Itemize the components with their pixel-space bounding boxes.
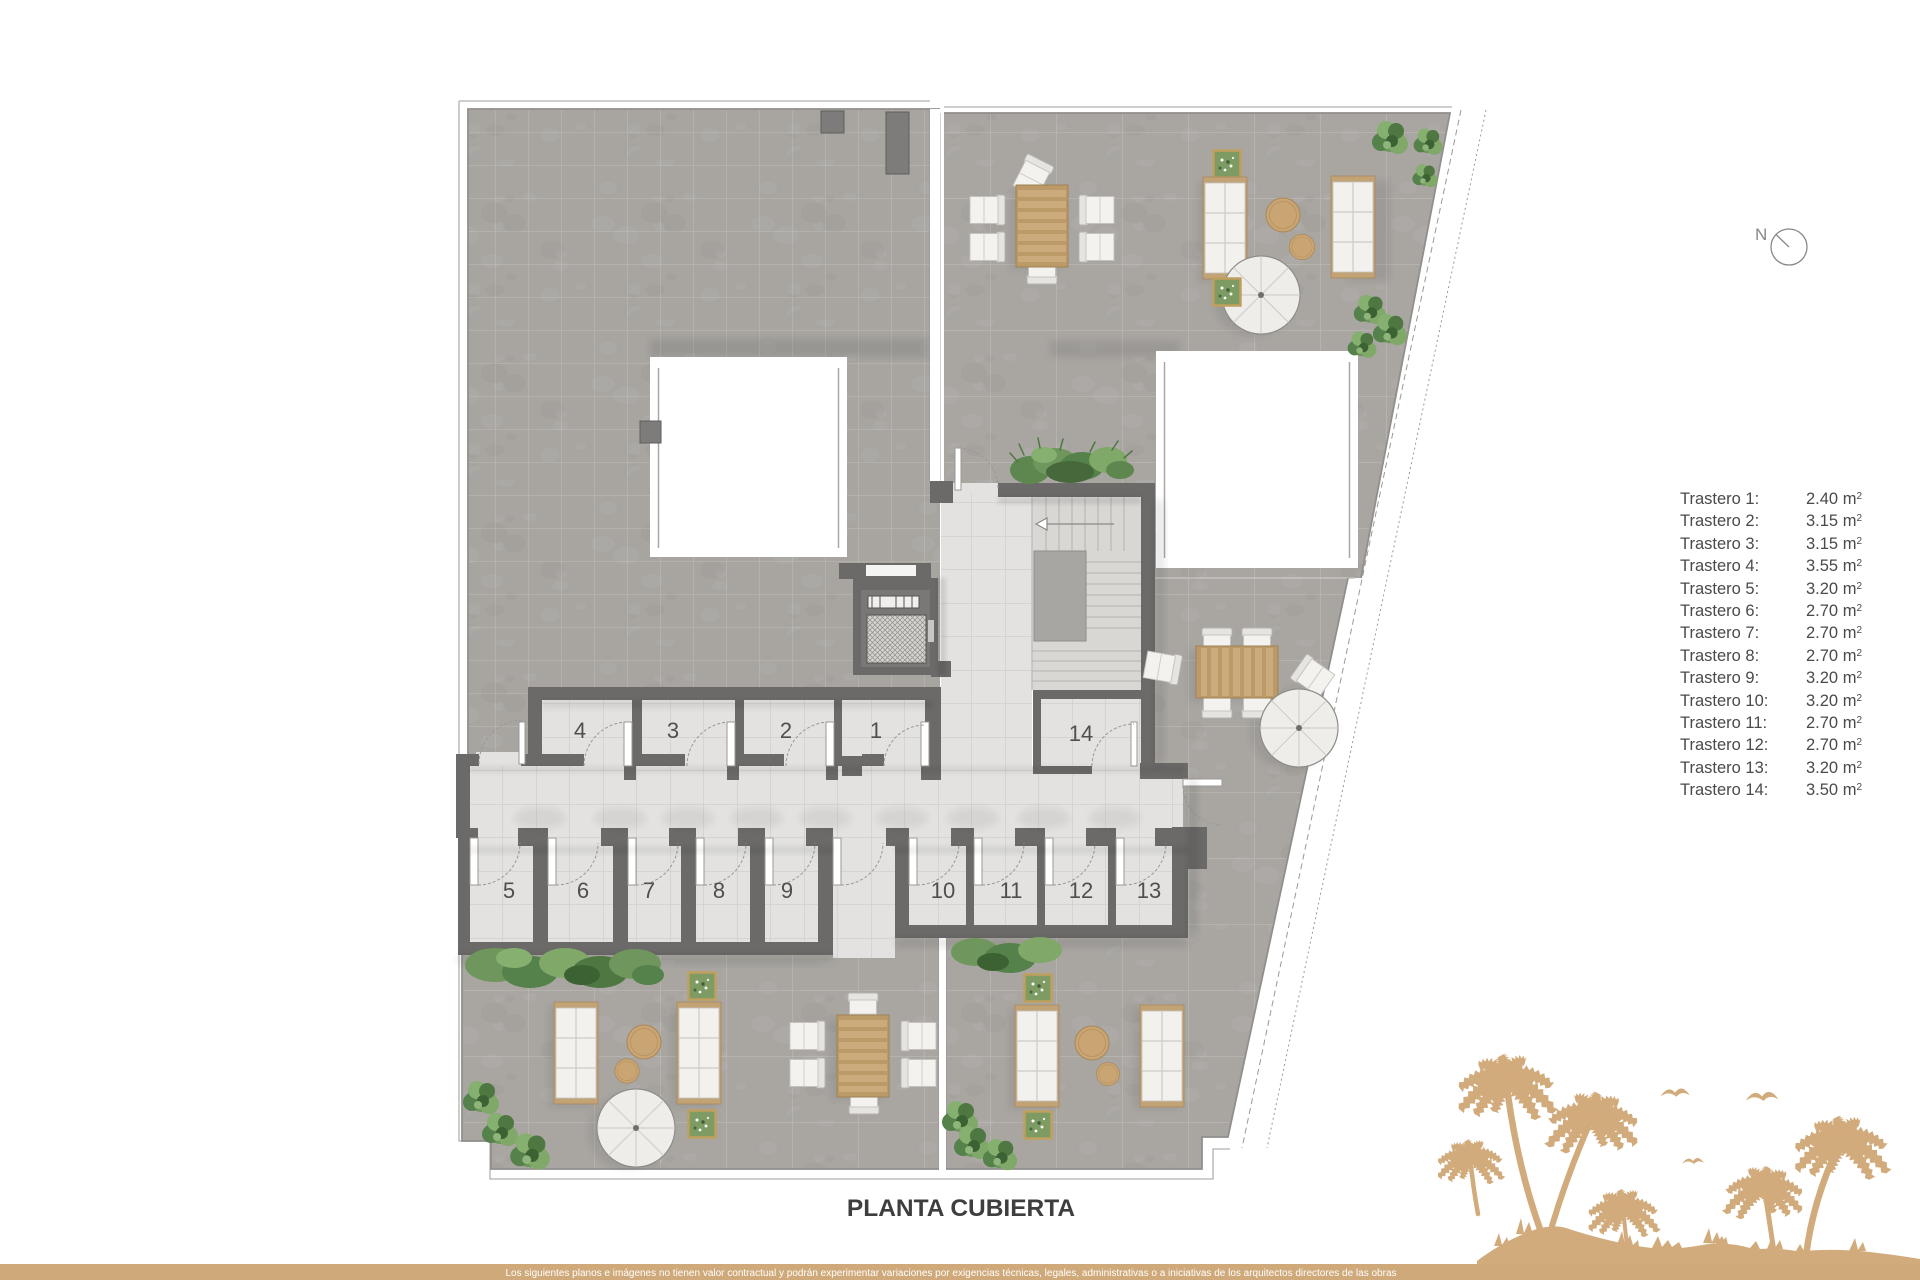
svg-text:2.40 m2: 2.40 m2 (1806, 490, 1862, 508)
svg-text:11: 11 (1000, 878, 1023, 903)
svg-text:12: 12 (1069, 878, 1093, 903)
svg-text:Trastero 3:: Trastero 3: (1680, 535, 1759, 553)
svg-text:5: 5 (503, 878, 515, 903)
svg-text:1: 1 (870, 718, 882, 743)
svg-text:8: 8 (713, 878, 725, 903)
svg-text:Trastero 8:: Trastero 8: (1680, 647, 1759, 665)
svg-text:Trastero 12:: Trastero 12: (1680, 736, 1768, 754)
svg-text:2.70 m2: 2.70 m2 (1806, 736, 1862, 754)
svg-text:Trastero 5:: Trastero 5: (1680, 580, 1759, 598)
svg-text:Trastero 1:: Trastero 1: (1680, 490, 1759, 508)
svg-text:Trastero 10:: Trastero 10: (1680, 692, 1768, 710)
svg-text:9: 9 (781, 878, 793, 903)
svg-text:3: 3 (667, 718, 679, 743)
svg-text:Los siguientes planos e imágen: Los siguientes planos e imágenes no tien… (505, 1268, 1396, 1279)
svg-text:3.55 m2: 3.55 m2 (1806, 557, 1862, 575)
svg-text:Trastero 6:: Trastero 6: (1680, 602, 1759, 620)
svg-text:Trastero 11:: Trastero 11: (1680, 714, 1767, 732)
svg-text:7: 7 (643, 878, 655, 903)
svg-text:2.70 m2: 2.70 m2 (1806, 602, 1862, 620)
svg-text:Trastero 7:: Trastero 7: (1680, 624, 1759, 642)
svg-text:PLANTA CUBIERTA: PLANTA CUBIERTA (847, 1195, 1075, 1222)
svg-text:4: 4 (574, 718, 586, 743)
svg-text:10: 10 (931, 878, 955, 903)
svg-text:3.15 m2: 3.15 m2 (1806, 512, 1862, 530)
svg-text:3.50 m2: 3.50 m2 (1806, 781, 1862, 799)
svg-text:Trastero 2:: Trastero 2: (1680, 512, 1759, 530)
svg-text:3.20 m2: 3.20 m2 (1806, 669, 1862, 687)
svg-text:3.15 m2: 3.15 m2 (1806, 535, 1862, 553)
svg-text:3.20 m2: 3.20 m2 (1806, 692, 1862, 710)
svg-text:3.20 m2: 3.20 m2 (1806, 580, 1862, 598)
svg-text:13: 13 (1137, 878, 1161, 903)
svg-text:2.70 m2: 2.70 m2 (1806, 714, 1862, 732)
svg-text:2.70 m2: 2.70 m2 (1806, 647, 1862, 665)
svg-text:Trastero 13:: Trastero 13: (1680, 759, 1768, 777)
svg-text:2: 2 (780, 718, 792, 743)
svg-text:Trastero 4:: Trastero 4: (1680, 557, 1759, 575)
svg-text:2.70 m2: 2.70 m2 (1806, 624, 1862, 642)
svg-text:3.20 m2: 3.20 m2 (1806, 759, 1862, 777)
svg-text:14: 14 (1069, 721, 1093, 746)
svg-text:Trastero 9:: Trastero 9: (1680, 669, 1759, 687)
svg-text:N: N (1755, 225, 1767, 244)
svg-text:Trastero 14:: Trastero 14: (1680, 781, 1768, 799)
svg-text:6: 6 (577, 878, 589, 903)
